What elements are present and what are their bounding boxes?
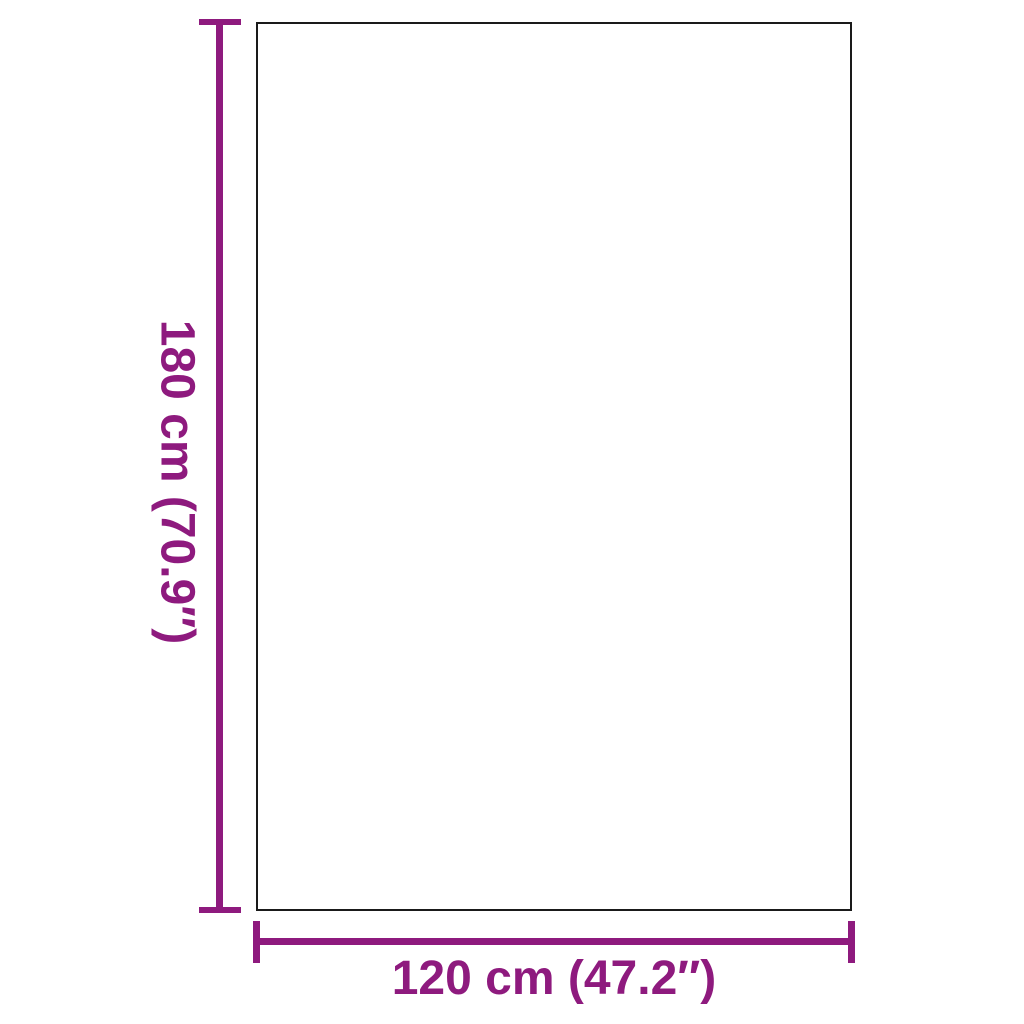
width-dimension-line bbox=[257, 938, 852, 945]
width-dimension-label: 120 cm (47.2″) bbox=[256, 951, 852, 1007]
height-dimension-label: 180 cm (70.9″) bbox=[150, 320, 205, 645]
product-outline bbox=[256, 22, 852, 911]
dimension-diagram: 180 cm (70.9″) 120 cm (47.2″) bbox=[0, 0, 1024, 1024]
height-dimension-cap-bottom bbox=[199, 907, 241, 913]
height-dimension-cap-top bbox=[199, 19, 241, 25]
height-dimension-line bbox=[216, 22, 223, 912]
